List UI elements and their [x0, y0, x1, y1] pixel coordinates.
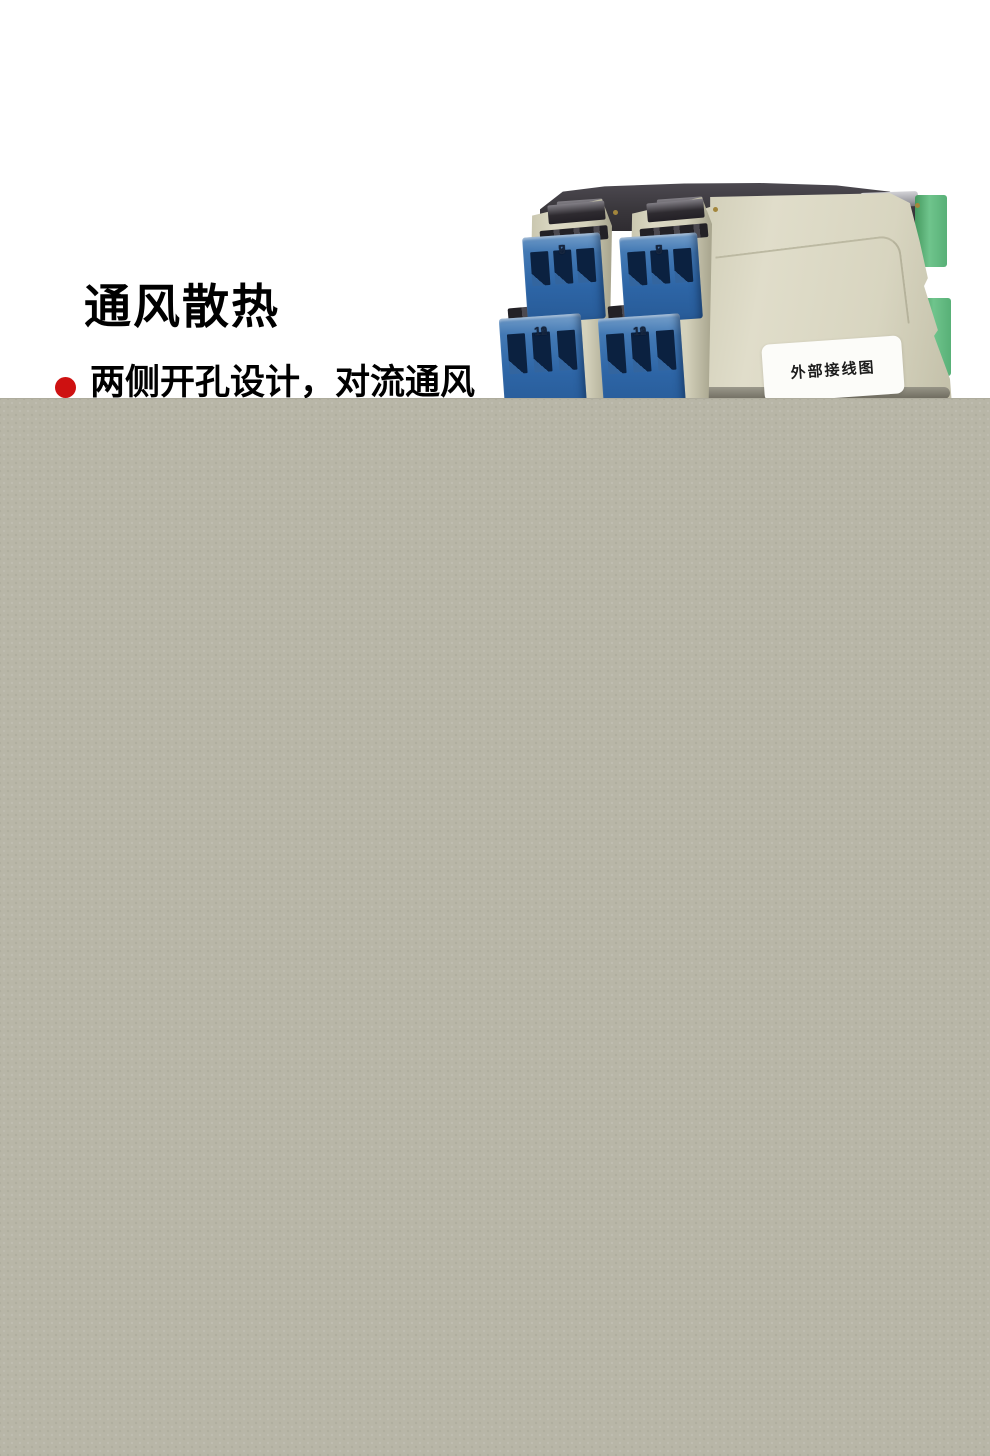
- terminal-number: 9: [655, 242, 663, 257]
- terminal-hole: [673, 248, 693, 283]
- terminal-block-789: 7 8 9: [522, 232, 606, 323]
- terminal-hole: [656, 330, 677, 371]
- section-heading: 通风散热: [84, 268, 280, 337]
- wiring-diagram-label: 外部接线图: [761, 335, 905, 403]
- screw-dot: [713, 207, 718, 212]
- terminal-hole: [507, 333, 528, 374]
- terminal-hole: [576, 248, 596, 283]
- terminal-number: 9: [558, 242, 566, 257]
- terminal-hole: [627, 251, 647, 286]
- terminal-hole: [606, 333, 627, 374]
- terminal-number: 12: [534, 324, 548, 339]
- terminal-hole: [530, 251, 550, 286]
- screw-dot: [613, 210, 618, 215]
- slide-canvas: 通风散热 两侧开孔设计，对流通风 7 8 9: [0, 0, 990, 1456]
- product-photo: 7 8 9 7 8 9 10: [495, 183, 965, 423]
- terminal-number: 12: [633, 324, 647, 339]
- terminal-hole: [557, 330, 578, 371]
- screw-dot: [915, 203, 920, 208]
- bullet-marker: [55, 377, 76, 398]
- gray-overlay-panel: [0, 398, 990, 1456]
- terminal-block-789: 7 8 9: [619, 232, 703, 323]
